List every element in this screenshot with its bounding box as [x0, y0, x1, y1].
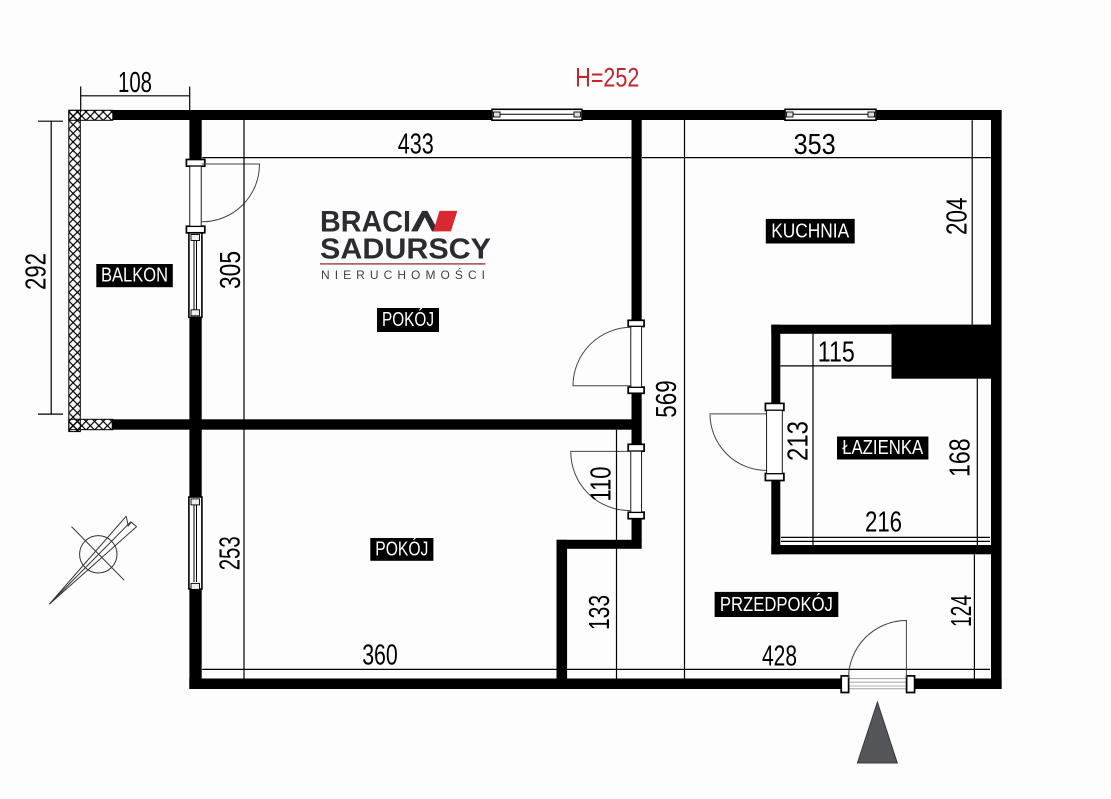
svg-text:NIERUCHOMOŚCI: NIERUCHOMOŚCI [321, 267, 485, 282]
svg-text:124: 124 [946, 595, 978, 627]
svg-text:133: 133 [584, 595, 616, 630]
svg-text:292: 292 [21, 253, 53, 290]
svg-text:115: 115 [818, 336, 855, 368]
svg-text:204: 204 [942, 198, 974, 236]
svg-text:305: 305 [215, 251, 247, 289]
svg-text:PRZEDPOKÓJ: PRZEDPOKÓJ [720, 593, 833, 616]
svg-text:213: 213 [783, 421, 815, 461]
svg-text:108: 108 [118, 67, 152, 99]
svg-text:433: 433 [398, 129, 434, 161]
svg-text:253: 253 [215, 536, 247, 570]
svg-text:569: 569 [651, 380, 683, 418]
svg-text:SADURSCY: SADURSCY [320, 233, 491, 265]
svg-text:110: 110 [586, 467, 618, 502]
svg-text:360: 360 [362, 640, 398, 672]
svg-text:POKÓJ: POKÓJ [375, 537, 428, 560]
svg-text:ŁAZIENKA: ŁAZIENKA [842, 437, 924, 459]
svg-text:POKÓJ: POKÓJ [382, 308, 434, 331]
svg-text:KUCHNIA: KUCHNIA [771, 220, 850, 242]
svg-text:H=252: H=252 [575, 63, 639, 93]
svg-text:428: 428 [762, 641, 797, 673]
svg-text:353: 353 [794, 129, 836, 161]
svg-text:BALKON: BALKON [101, 265, 168, 287]
svg-text:216: 216 [865, 507, 902, 539]
svg-text:168: 168 [945, 438, 977, 477]
